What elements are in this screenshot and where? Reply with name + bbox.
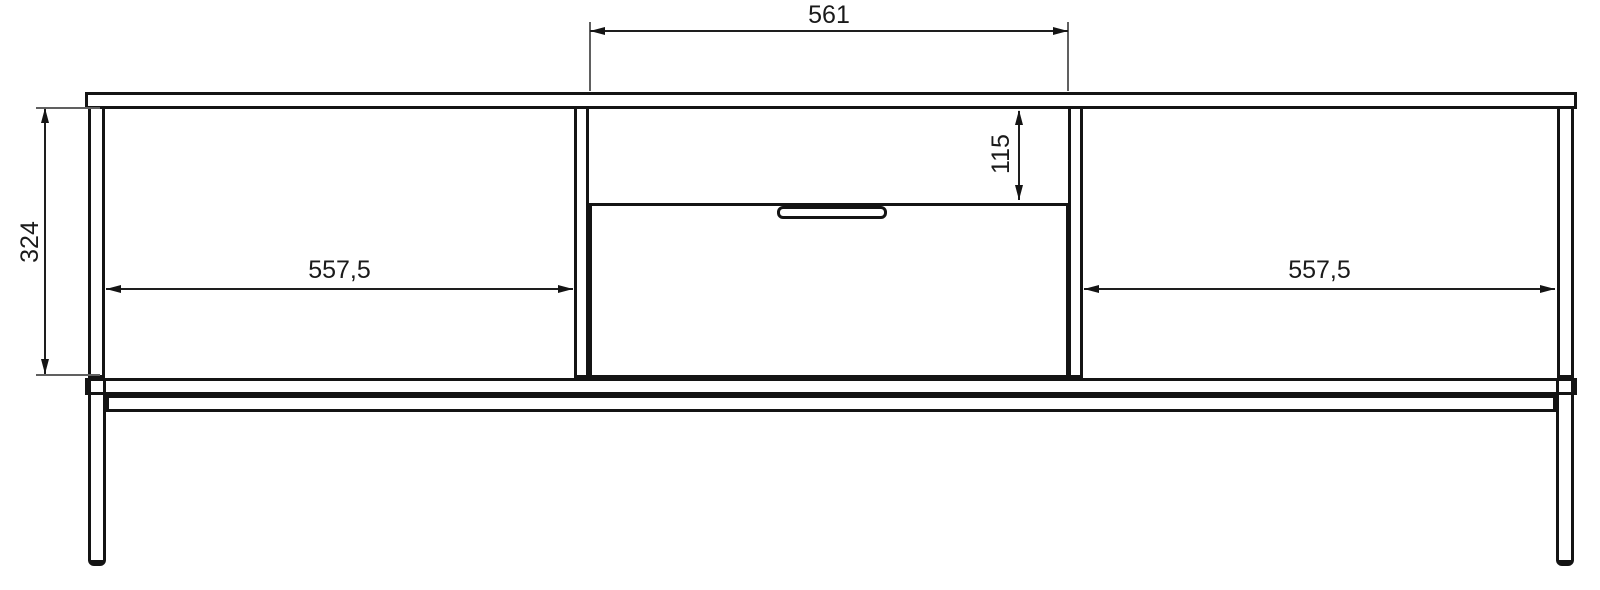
dim-label-561: 561 xyxy=(590,1,1068,29)
frame-rail xyxy=(106,395,1556,412)
dim-label-324: 324 xyxy=(16,197,44,287)
dim-5575-right-arrowhead-right xyxy=(1540,285,1555,293)
dim-561-line xyxy=(590,30,1068,32)
dim-324-arrowhead-top xyxy=(41,108,49,123)
technical-drawing-canvas: 561 324 115 557,5 557,5 xyxy=(0,0,1600,590)
dim-label-5575-right: 557,5 xyxy=(1084,256,1555,284)
bottom-panel xyxy=(85,378,1577,395)
right-side-panel xyxy=(1557,109,1574,378)
dim-115-arrowhead-bottom xyxy=(1015,185,1023,200)
left-partition xyxy=(574,109,589,378)
dim-5575-right-arrowhead-left xyxy=(1084,285,1099,293)
right-partition xyxy=(1068,109,1083,378)
drawer-front xyxy=(589,203,1069,378)
dim-label-115: 115 xyxy=(987,109,1015,199)
right-leg xyxy=(1556,378,1574,566)
left-leg xyxy=(88,378,106,566)
dim-5575-left-arrowhead-left xyxy=(106,285,121,293)
dim-324-extension-line-bottom xyxy=(36,374,100,376)
dim-label-5575-left: 557,5 xyxy=(106,256,573,284)
dim-324-line xyxy=(44,109,46,374)
dim-5575-right-line xyxy=(1084,288,1555,290)
dim-5575-left-line xyxy=(106,288,573,290)
left-side-panel xyxy=(88,109,105,378)
drawer-handle xyxy=(777,206,887,219)
top-panel xyxy=(85,92,1577,109)
dim-115-arrowhead-top xyxy=(1015,110,1023,125)
dim-5575-left-arrowhead-right xyxy=(558,285,573,293)
dim-324-arrowhead-bottom xyxy=(41,359,49,374)
